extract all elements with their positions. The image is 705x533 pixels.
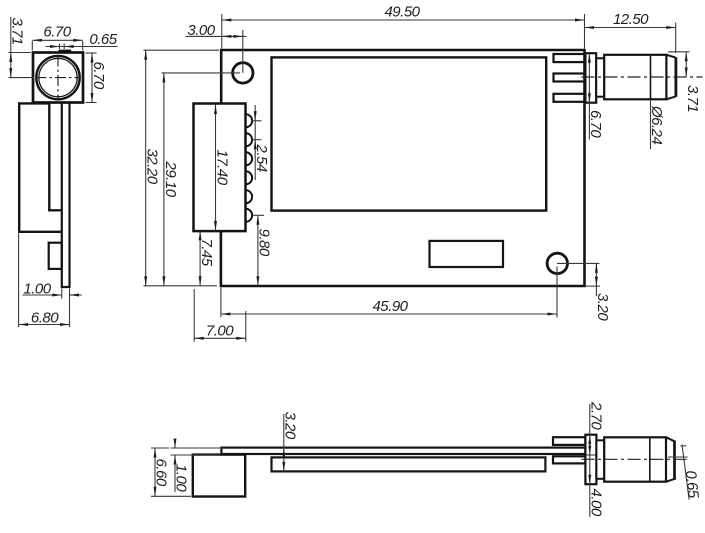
svg-text:0.65: 0.65 bbox=[682, 470, 702, 500]
svg-text:3.20: 3.20 bbox=[282, 412, 299, 440]
svg-text:49.50: 49.50 bbox=[384, 4, 420, 21]
svg-text:32.20: 32.20 bbox=[143, 149, 160, 185]
svg-text:7.45: 7.45 bbox=[198, 239, 215, 267]
svg-text:45.90: 45.90 bbox=[372, 298, 408, 315]
svg-text:29.10: 29.10 bbox=[162, 161, 179, 198]
svg-text:0.65: 0.65 bbox=[89, 31, 117, 48]
svg-text:6.70: 6.70 bbox=[587, 110, 604, 138]
svg-text:7.00: 7.00 bbox=[206, 323, 234, 340]
svg-text:1.00: 1.00 bbox=[173, 464, 190, 492]
svg-text:2.70: 2.70 bbox=[588, 401, 605, 430]
svg-text:6.70: 6.70 bbox=[90, 62, 107, 90]
svg-text:17.40: 17.40 bbox=[213, 150, 230, 186]
svg-text:4.00: 4.00 bbox=[588, 489, 605, 517]
svg-text:3.20: 3.20 bbox=[594, 293, 611, 321]
svg-text:Ø6.24: Ø6.24 bbox=[648, 105, 665, 145]
svg-text:6.70: 6.70 bbox=[43, 24, 71, 41]
svg-text:3.71: 3.71 bbox=[9, 18, 26, 45]
svg-text:6.60: 6.60 bbox=[153, 459, 170, 487]
svg-text:6.80: 6.80 bbox=[31, 310, 59, 327]
svg-text:3.00: 3.00 bbox=[187, 22, 215, 39]
svg-text:12.50: 12.50 bbox=[613, 11, 649, 28]
svg-text:1.00: 1.00 bbox=[23, 281, 51, 298]
svg-text:3.71: 3.71 bbox=[684, 85, 701, 112]
svg-text:2.54: 2.54 bbox=[253, 144, 270, 172]
svg-text:9.80: 9.80 bbox=[256, 229, 273, 257]
